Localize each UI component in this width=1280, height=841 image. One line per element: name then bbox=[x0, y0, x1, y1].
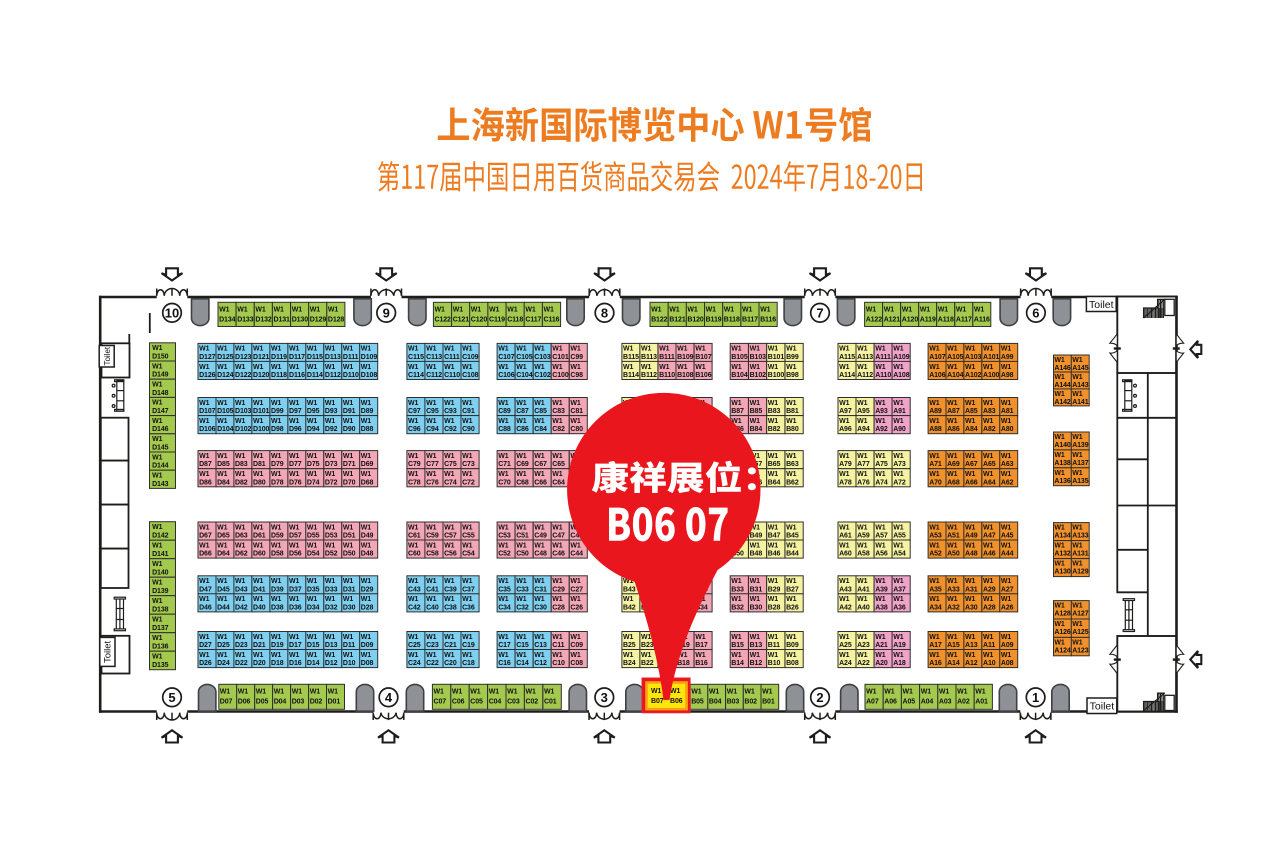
svg-text:W1: W1 bbox=[1001, 471, 1012, 478]
svg-text:A118: A118 bbox=[938, 317, 954, 324]
svg-text:D79: D79 bbox=[271, 461, 284, 468]
svg-text:W1: W1 bbox=[786, 400, 797, 407]
svg-text:D49: D49 bbox=[361, 533, 374, 540]
svg-text:W1: W1 bbox=[884, 307, 895, 314]
svg-text:W1: W1 bbox=[507, 689, 518, 696]
svg-text:C32: C32 bbox=[516, 604, 529, 611]
svg-text:W1: W1 bbox=[310, 307, 321, 314]
svg-text:A75: A75 bbox=[875, 461, 888, 468]
svg-text:B22: B22 bbox=[641, 660, 654, 667]
svg-text:W1: W1 bbox=[552, 471, 563, 478]
svg-text:A123: A123 bbox=[1072, 647, 1089, 654]
svg-text:D117: D117 bbox=[289, 354, 305, 361]
svg-text:W1: W1 bbox=[325, 400, 336, 407]
svg-text:W1: W1 bbox=[343, 400, 354, 407]
svg-text:D135: D135 bbox=[152, 662, 169, 669]
svg-text:D119: D119 bbox=[271, 354, 287, 361]
svg-text:C15: C15 bbox=[516, 642, 529, 649]
svg-text:W1: W1 bbox=[857, 453, 868, 460]
svg-text:W1: W1 bbox=[659, 364, 670, 371]
svg-text:C48: C48 bbox=[534, 551, 547, 558]
svg-text:C98: C98 bbox=[570, 372, 583, 379]
svg-text:W1: W1 bbox=[307, 400, 318, 407]
svg-text:W1: W1 bbox=[544, 307, 555, 314]
svg-text:B62: B62 bbox=[786, 479, 799, 486]
svg-text:W1: W1 bbox=[929, 400, 940, 407]
svg-text:W1: W1 bbox=[307, 634, 318, 641]
svg-text:C01: C01 bbox=[544, 699, 557, 706]
svg-text:A144: A144 bbox=[1054, 382, 1071, 389]
svg-text:D121: D121 bbox=[253, 354, 270, 361]
svg-text:W1: W1 bbox=[1054, 470, 1065, 477]
svg-text:W1: W1 bbox=[1054, 452, 1065, 459]
svg-text:D46: D46 bbox=[199, 604, 212, 611]
svg-text:B105: B105 bbox=[731, 354, 748, 361]
svg-text:W1: W1 bbox=[489, 307, 500, 314]
svg-text:W1: W1 bbox=[1072, 391, 1083, 398]
svg-text:C54: C54 bbox=[462, 551, 475, 558]
svg-text:W1: W1 bbox=[408, 418, 419, 425]
svg-text:W1: W1 bbox=[903, 689, 914, 696]
svg-text:W1: W1 bbox=[462, 596, 473, 603]
svg-text:W1: W1 bbox=[857, 418, 868, 425]
svg-text:A39: A39 bbox=[875, 586, 888, 593]
svg-text:D127: D127 bbox=[199, 354, 216, 361]
svg-text:W1: W1 bbox=[623, 364, 634, 371]
svg-text:W1: W1 bbox=[875, 418, 886, 425]
svg-text:D14: D14 bbox=[307, 660, 320, 667]
svg-text:B119: B119 bbox=[706, 317, 722, 324]
svg-text:D113: D113 bbox=[325, 354, 341, 361]
svg-text:W1: W1 bbox=[361, 418, 372, 425]
svg-text:W1: W1 bbox=[1001, 364, 1012, 371]
svg-text:W1: W1 bbox=[426, 418, 437, 425]
svg-text:W1: W1 bbox=[929, 453, 940, 460]
svg-text:W1: W1 bbox=[947, 596, 958, 603]
svg-text:W1: W1 bbox=[343, 346, 354, 353]
svg-text:W1: W1 bbox=[786, 634, 797, 641]
svg-text:W1: W1 bbox=[983, 400, 994, 407]
svg-text:D51: D51 bbox=[343, 533, 356, 540]
svg-text:W1: W1 bbox=[444, 364, 455, 371]
svg-text:C46: C46 bbox=[552, 551, 565, 558]
svg-text:B07: B07 bbox=[651, 698, 664, 705]
svg-text:D34: D34 bbox=[307, 604, 320, 611]
svg-text:W1: W1 bbox=[534, 453, 545, 460]
svg-text:C42: C42 bbox=[408, 604, 421, 611]
svg-text:A82: A82 bbox=[983, 426, 996, 433]
svg-text:D94: D94 bbox=[307, 426, 320, 433]
svg-text:W1: W1 bbox=[893, 400, 904, 407]
svg-text:A113: A113 bbox=[857, 354, 873, 361]
svg-text:A20: A20 bbox=[875, 660, 888, 667]
svg-text:W1: W1 bbox=[731, 578, 742, 585]
svg-text:W1: W1 bbox=[199, 453, 210, 460]
svg-text:W1: W1 bbox=[570, 634, 581, 641]
svg-text:W1: W1 bbox=[866, 307, 877, 314]
svg-text:W1: W1 bbox=[343, 471, 354, 478]
svg-text:W1: W1 bbox=[152, 454, 163, 461]
svg-text:W1: W1 bbox=[750, 400, 761, 407]
svg-text:W1: W1 bbox=[343, 652, 354, 659]
svg-text:D107: D107 bbox=[199, 408, 216, 415]
svg-text:W1: W1 bbox=[1001, 453, 1012, 460]
svg-text:D105: D105 bbox=[217, 408, 234, 415]
svg-text:W1: W1 bbox=[839, 524, 850, 531]
svg-text:W1: W1 bbox=[325, 346, 336, 353]
svg-text:W1: W1 bbox=[307, 652, 318, 659]
svg-text:W1: W1 bbox=[343, 634, 354, 641]
svg-text:W1: W1 bbox=[498, 418, 509, 425]
svg-text:W1: W1 bbox=[199, 364, 210, 371]
svg-text:B107: B107 bbox=[695, 354, 712, 361]
svg-text:W1: W1 bbox=[956, 307, 967, 314]
svg-text:B85: B85 bbox=[750, 408, 763, 415]
svg-text:W1: W1 bbox=[623, 346, 634, 353]
svg-text:W1: W1 bbox=[462, 542, 473, 549]
svg-text:W1: W1 bbox=[307, 542, 318, 549]
svg-text:D136: D136 bbox=[152, 644, 169, 651]
svg-text:W1: W1 bbox=[271, 542, 282, 549]
svg-text:W1: W1 bbox=[426, 364, 437, 371]
svg-text:C55: C55 bbox=[462, 533, 475, 540]
svg-text:W1: W1 bbox=[929, 524, 940, 531]
svg-text:B16: B16 bbox=[695, 660, 708, 667]
svg-text:B27: B27 bbox=[786, 586, 799, 593]
svg-text:D26: D26 bbox=[199, 660, 212, 667]
svg-text:D41: D41 bbox=[253, 586, 266, 593]
svg-text:W1: W1 bbox=[462, 418, 473, 425]
svg-text:W1: W1 bbox=[893, 418, 904, 425]
svg-text:B43: B43 bbox=[623, 586, 636, 593]
svg-text:A03: A03 bbox=[939, 699, 952, 706]
svg-text:C92: C92 bbox=[444, 426, 457, 433]
svg-text:A129: A129 bbox=[1072, 569, 1089, 576]
svg-text:A103: A103 bbox=[965, 354, 982, 361]
svg-text:D21: D21 bbox=[253, 642, 266, 649]
svg-text:W1: W1 bbox=[965, 578, 976, 585]
svg-text:D95: D95 bbox=[307, 408, 320, 415]
svg-text:C11: C11 bbox=[552, 642, 564, 649]
svg-text:W1: W1 bbox=[544, 689, 555, 696]
svg-text:W1: W1 bbox=[750, 418, 761, 425]
svg-text:W1: W1 bbox=[235, 400, 246, 407]
svg-text:C65: C65 bbox=[552, 461, 565, 468]
svg-text:D62: D62 bbox=[235, 551, 248, 558]
svg-text:Toilet: Toilet bbox=[1090, 701, 1115, 713]
svg-text:A05: A05 bbox=[903, 699, 916, 706]
svg-text:W1: W1 bbox=[552, 578, 563, 585]
svg-text:W1: W1 bbox=[289, 524, 300, 531]
svg-text:W1: W1 bbox=[677, 364, 688, 371]
svg-text:W1: W1 bbox=[857, 578, 868, 585]
svg-text:W1: W1 bbox=[361, 400, 372, 407]
svg-text:D81: D81 bbox=[253, 461, 266, 468]
svg-text:7: 7 bbox=[816, 306, 823, 321]
svg-text:W1: W1 bbox=[289, 542, 300, 549]
svg-text:A66: A66 bbox=[965, 479, 978, 486]
svg-text:W1: W1 bbox=[786, 542, 797, 549]
svg-text:C95: C95 bbox=[426, 408, 439, 415]
svg-text:W1: W1 bbox=[516, 578, 527, 585]
svg-text:Toilet: Toilet bbox=[103, 346, 112, 365]
svg-text:W1: W1 bbox=[866, 689, 877, 696]
svg-text:A90: A90 bbox=[893, 426, 906, 433]
svg-text:W1: W1 bbox=[361, 634, 372, 641]
svg-text:A54: A54 bbox=[893, 551, 906, 558]
svg-text:D114: D114 bbox=[307, 372, 323, 379]
svg-text:W1: W1 bbox=[253, 471, 264, 478]
svg-text:W1: W1 bbox=[965, 364, 976, 371]
svg-text:D22: D22 bbox=[235, 660, 248, 667]
svg-text:W1: W1 bbox=[570, 346, 581, 353]
svg-text:W1: W1 bbox=[307, 471, 318, 478]
svg-text:W1: W1 bbox=[974, 307, 985, 314]
svg-text:A15: A15 bbox=[947, 642, 960, 649]
svg-text:W1: W1 bbox=[839, 634, 850, 641]
svg-text:W1: W1 bbox=[426, 652, 437, 659]
svg-text:W1: W1 bbox=[361, 524, 372, 531]
svg-text:W1: W1 bbox=[839, 400, 850, 407]
svg-text:W1: W1 bbox=[152, 418, 163, 425]
svg-text:C72: C72 bbox=[462, 479, 475, 486]
svg-text:W1: W1 bbox=[199, 634, 210, 641]
svg-text:W1: W1 bbox=[271, 364, 282, 371]
svg-text:D58: D58 bbox=[271, 551, 284, 558]
svg-text:W1: W1 bbox=[217, 524, 228, 531]
svg-text:D149: D149 bbox=[152, 372, 169, 379]
svg-text:B100: B100 bbox=[768, 372, 785, 379]
svg-text:B29: B29 bbox=[768, 586, 781, 593]
svg-text:W1: W1 bbox=[786, 471, 797, 478]
svg-text:C84: C84 bbox=[534, 426, 547, 433]
svg-text:W1: W1 bbox=[343, 418, 354, 425]
svg-text:W1: W1 bbox=[408, 596, 419, 603]
svg-text:W1: W1 bbox=[255, 307, 266, 314]
svg-text:D130: D130 bbox=[292, 317, 309, 324]
svg-text:W1: W1 bbox=[1001, 634, 1012, 641]
svg-text:C120: C120 bbox=[471, 317, 488, 324]
svg-text:A57: A57 bbox=[875, 533, 888, 540]
svg-text:C78: C78 bbox=[408, 479, 421, 486]
svg-text:C41: C41 bbox=[426, 586, 439, 593]
svg-text:W1: W1 bbox=[983, 524, 994, 531]
svg-text:W1: W1 bbox=[1054, 621, 1065, 628]
svg-text:D88: D88 bbox=[361, 426, 374, 433]
svg-text:W1: W1 bbox=[408, 524, 419, 531]
svg-text:A35: A35 bbox=[929, 586, 942, 593]
svg-text:W1: W1 bbox=[706, 307, 717, 314]
svg-text:W1: W1 bbox=[1072, 603, 1083, 610]
svg-text:W1: W1 bbox=[271, 418, 282, 425]
svg-text:A81: A81 bbox=[1001, 408, 1014, 415]
svg-text:W1: W1 bbox=[1054, 561, 1065, 568]
svg-text:W1: W1 bbox=[217, 346, 228, 353]
svg-text:W1: W1 bbox=[1072, 374, 1083, 381]
svg-text:A119: A119 bbox=[920, 317, 936, 324]
svg-text:W1: W1 bbox=[884, 689, 895, 696]
svg-text:W1: W1 bbox=[570, 418, 581, 425]
svg-text:A21: A21 bbox=[875, 642, 888, 649]
svg-text:D30: D30 bbox=[343, 604, 356, 611]
svg-text:W1: W1 bbox=[1001, 346, 1012, 353]
svg-text:W1: W1 bbox=[498, 634, 509, 641]
svg-text:A122: A122 bbox=[866, 317, 883, 324]
svg-text:D86: D86 bbox=[199, 479, 212, 486]
svg-text:W1: W1 bbox=[893, 634, 904, 641]
svg-text:A83: A83 bbox=[983, 408, 996, 415]
svg-text:W1: W1 bbox=[929, 364, 940, 371]
svg-text:W1: W1 bbox=[938, 307, 949, 314]
svg-text:W1: W1 bbox=[498, 652, 509, 659]
svg-text:C109: C109 bbox=[462, 354, 479, 361]
svg-text:W1: W1 bbox=[534, 400, 545, 407]
svg-text:A46: A46 bbox=[983, 551, 996, 558]
svg-text:C122: C122 bbox=[435, 317, 452, 324]
svg-text:W1: W1 bbox=[695, 652, 706, 659]
svg-text:W1: W1 bbox=[253, 364, 264, 371]
svg-text:C40: C40 bbox=[426, 604, 439, 611]
svg-text:B18: B18 bbox=[677, 660, 690, 667]
svg-text:W1: W1 bbox=[426, 346, 437, 353]
svg-text:B28: B28 bbox=[768, 604, 781, 611]
svg-text:A47: A47 bbox=[983, 533, 996, 540]
svg-text:D32: D32 bbox=[325, 604, 338, 611]
svg-text:B48: B48 bbox=[750, 551, 763, 558]
svg-text:W1: W1 bbox=[902, 307, 913, 314]
svg-text:W1: W1 bbox=[498, 578, 509, 585]
svg-text:W1: W1 bbox=[768, 524, 779, 531]
svg-text:A124: A124 bbox=[1054, 647, 1071, 654]
svg-text:W1: W1 bbox=[1054, 543, 1065, 550]
svg-text:W1: W1 bbox=[498, 346, 509, 353]
svg-text:W1: W1 bbox=[199, 418, 210, 425]
svg-text:W1: W1 bbox=[750, 596, 761, 603]
svg-text:W1: W1 bbox=[983, 364, 994, 371]
svg-text:W1: W1 bbox=[786, 596, 797, 603]
svg-text:D74: D74 bbox=[307, 479, 320, 486]
svg-text:W1: W1 bbox=[731, 634, 742, 641]
svg-text:W1: W1 bbox=[235, 596, 246, 603]
svg-text:C88: C88 bbox=[498, 426, 511, 433]
svg-text:W1: W1 bbox=[199, 524, 210, 531]
svg-text:W1: W1 bbox=[325, 364, 336, 371]
svg-text:A04: A04 bbox=[921, 699, 934, 706]
svg-text:A71: A71 bbox=[929, 461, 942, 468]
svg-text:W1: W1 bbox=[217, 596, 228, 603]
svg-text:W1: W1 bbox=[983, 578, 994, 585]
svg-text:D05: D05 bbox=[256, 699, 269, 706]
svg-text:C89: C89 bbox=[498, 408, 511, 415]
svg-text:W1: W1 bbox=[452, 689, 463, 696]
svg-text:W1: W1 bbox=[426, 578, 437, 585]
svg-text:A101: A101 bbox=[983, 354, 1000, 361]
svg-text:W1: W1 bbox=[929, 346, 940, 353]
svg-text:W1: W1 bbox=[534, 364, 545, 371]
svg-text:W1: W1 bbox=[875, 578, 886, 585]
svg-text:C19: C19 bbox=[462, 642, 475, 649]
svg-text:D144: D144 bbox=[152, 463, 169, 470]
svg-text:W1: W1 bbox=[659, 346, 670, 353]
svg-text:W1: W1 bbox=[768, 364, 779, 371]
svg-text:A73: A73 bbox=[893, 461, 906, 468]
svg-text:W1: W1 bbox=[983, 596, 994, 603]
svg-text:W1: W1 bbox=[965, 346, 976, 353]
svg-text:W1: W1 bbox=[929, 542, 940, 549]
svg-text:W1: W1 bbox=[1072, 561, 1083, 568]
svg-text:W1: W1 bbox=[857, 471, 868, 478]
svg-text:D47: D47 bbox=[199, 586, 212, 593]
svg-text:W1: W1 bbox=[786, 652, 797, 659]
svg-text:A41: A41 bbox=[857, 586, 870, 593]
svg-text:C90: C90 bbox=[462, 426, 475, 433]
svg-text:B47: B47 bbox=[768, 533, 781, 540]
svg-text:W1: W1 bbox=[947, 471, 958, 478]
svg-text:W1: W1 bbox=[444, 524, 455, 531]
svg-text:D123: D123 bbox=[235, 354, 252, 361]
svg-text:W1: W1 bbox=[343, 542, 354, 549]
svg-text:B30: B30 bbox=[750, 604, 763, 611]
svg-text:C04: C04 bbox=[489, 699, 502, 706]
svg-text:C49: C49 bbox=[534, 533, 547, 540]
svg-text:W1: W1 bbox=[947, 400, 958, 407]
svg-text:W1: W1 bbox=[709, 689, 720, 696]
svg-text:W1: W1 bbox=[1001, 578, 1012, 585]
svg-text:W1: W1 bbox=[525, 307, 536, 314]
svg-text:W1: W1 bbox=[152, 617, 163, 624]
svg-text:D11: D11 bbox=[343, 642, 355, 649]
svg-text:W1: W1 bbox=[1072, 434, 1083, 441]
svg-text:W1: W1 bbox=[444, 596, 455, 603]
svg-text:D124: D124 bbox=[217, 372, 234, 379]
svg-text:A104: A104 bbox=[947, 372, 964, 379]
svg-text:W1: W1 bbox=[361, 542, 372, 549]
svg-text:A30: A30 bbox=[965, 604, 978, 611]
svg-text:W1: W1 bbox=[217, 542, 228, 549]
svg-text:W1: W1 bbox=[983, 471, 994, 478]
svg-text:W1: W1 bbox=[253, 400, 264, 407]
svg-text:W1: W1 bbox=[462, 346, 473, 353]
svg-text:W1: W1 bbox=[271, 400, 282, 407]
svg-text:W1: W1 bbox=[444, 453, 455, 460]
svg-text:B10: B10 bbox=[768, 660, 781, 667]
svg-text:C22: C22 bbox=[426, 660, 439, 667]
svg-text:C99: C99 bbox=[570, 354, 583, 361]
svg-text:W1: W1 bbox=[552, 634, 563, 641]
svg-text:W1: W1 bbox=[516, 596, 527, 603]
svg-text:B120: B120 bbox=[687, 317, 704, 324]
svg-text:A133: A133 bbox=[1072, 533, 1089, 540]
svg-text:A55: A55 bbox=[893, 533, 906, 540]
svg-text:B112: B112 bbox=[641, 372, 657, 379]
svg-text:9: 9 bbox=[383, 306, 390, 321]
svg-text:W1: W1 bbox=[1054, 391, 1065, 398]
svg-text:D133: D133 bbox=[237, 317, 254, 324]
svg-text:A131: A131 bbox=[1072, 551, 1089, 558]
svg-text:W1: W1 bbox=[498, 524, 509, 531]
svg-text:D72: D72 bbox=[325, 479, 338, 486]
svg-text:A79: A79 bbox=[839, 461, 852, 468]
svg-text:A114: A114 bbox=[839, 372, 855, 379]
svg-text:A31: A31 bbox=[965, 586, 978, 593]
svg-text:W1: W1 bbox=[238, 689, 249, 696]
svg-text:D55: D55 bbox=[307, 533, 320, 540]
svg-text:D89: D89 bbox=[361, 408, 374, 415]
svg-text:W1: W1 bbox=[534, 634, 545, 641]
svg-text:C117: C117 bbox=[525, 317, 541, 324]
svg-text:W1: W1 bbox=[750, 364, 761, 371]
svg-text:A36: A36 bbox=[893, 604, 906, 611]
